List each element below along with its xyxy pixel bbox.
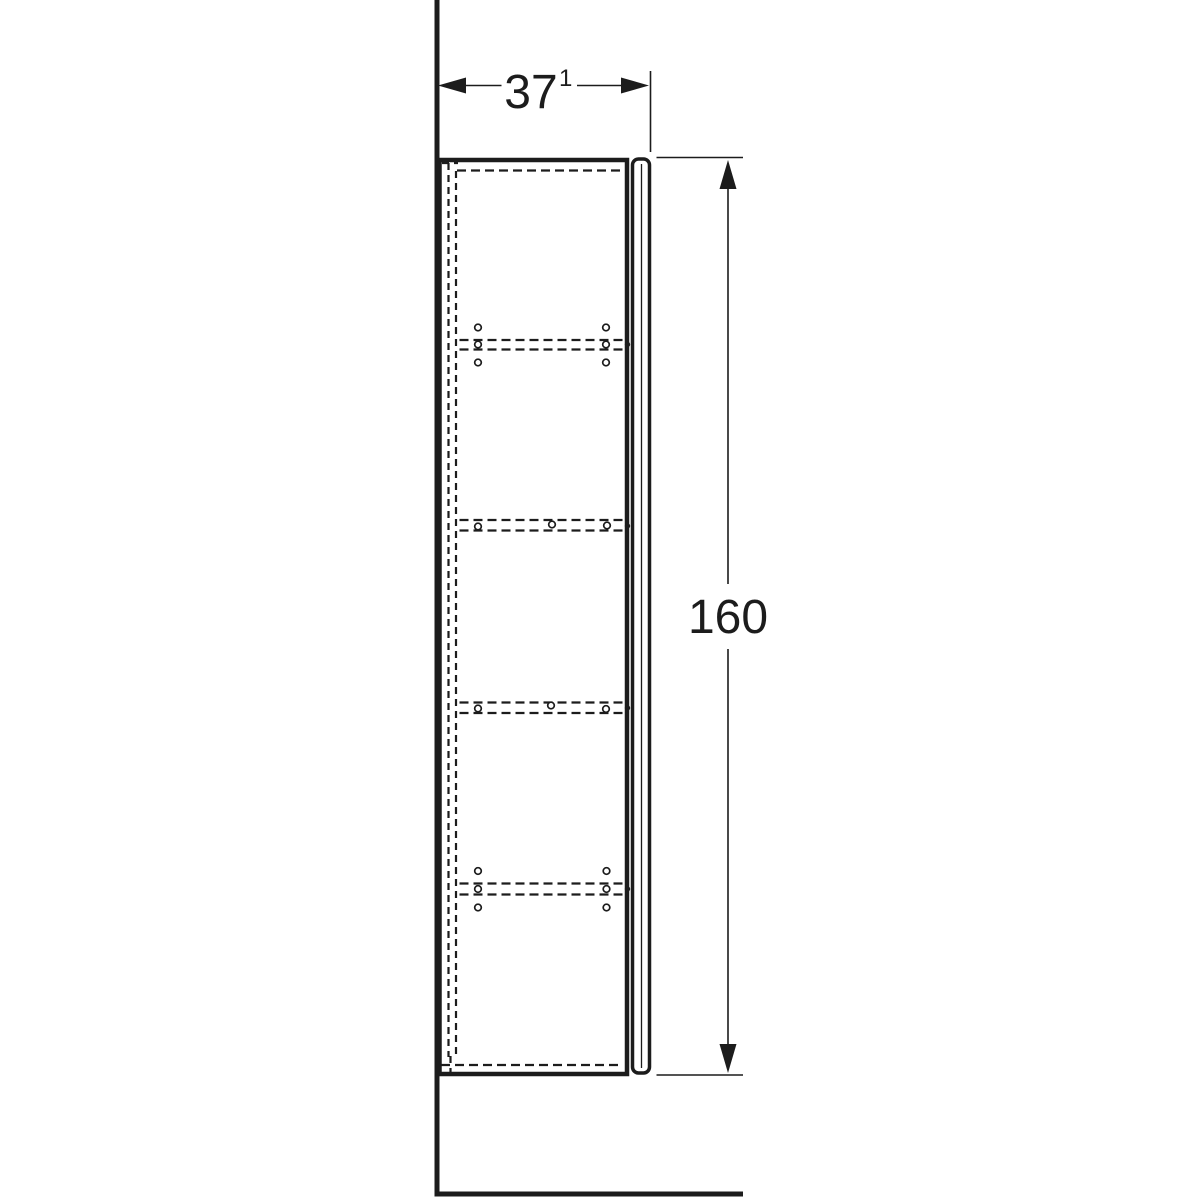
shelf-4-hidden-edges: [460, 868, 631, 911]
shelf-peg-hole: [475, 886, 482, 893]
width-arrow-left-icon: [438, 78, 466, 94]
shelf-peg-hole: [603, 324, 610, 331]
shelf-peg-hole: [475, 868, 482, 875]
shelf-peg-hole: [603, 341, 610, 348]
shelf-peg-hole: [603, 904, 610, 911]
shelf-peg-hole: [603, 868, 610, 875]
shelf-peg-hole: [475, 324, 482, 331]
shelf-edge-dowel: [625, 342, 630, 347]
shelf-edge-dowel: [625, 705, 630, 710]
shelf-edge-dowel: [625, 523, 630, 528]
technical-drawing-page: 37 1 160: [0, 0, 1200, 1200]
cabinet-carcass: [440, 160, 628, 1074]
width-arrow-right-icon: [621, 78, 649, 94]
shelf-peg-hole: [475, 523, 482, 530]
cabinet-side-elevation: 37 1 160: [0, 0, 1200, 1200]
shelf-peg-hole: [548, 702, 555, 709]
shelf-1-hidden-edges: [460, 324, 631, 366]
height-dimension-value: 160: [688, 591, 768, 644]
shelf-peg-hole: [603, 706, 610, 713]
height-arrow-down-icon: [720, 1044, 737, 1073]
shelf-peg-hole: [475, 359, 482, 366]
width-dimension: 37 1: [438, 65, 651, 152]
width-dimension-value: 37: [504, 66, 557, 119]
shelf-peg-hole: [475, 705, 482, 712]
shelf-2-hidden-edges: [460, 520, 631, 531]
width-dimension-superscript: 1: [559, 65, 572, 92]
shelf-edge-dowel: [625, 886, 630, 891]
shelf-peg-hole: [549, 521, 556, 528]
height-dimension: 160: [657, 158, 769, 1076]
height-arrow-up-icon: [720, 160, 737, 189]
shelf-peg-hole: [603, 886, 610, 893]
shelf-peg-hole: [603, 359, 610, 366]
shelf-3-hidden-edges: [460, 702, 631, 713]
shelf-peg-hole: [604, 522, 611, 529]
shelf-peg-hole: [475, 341, 482, 348]
shelf-peg-hole: [475, 904, 482, 911]
